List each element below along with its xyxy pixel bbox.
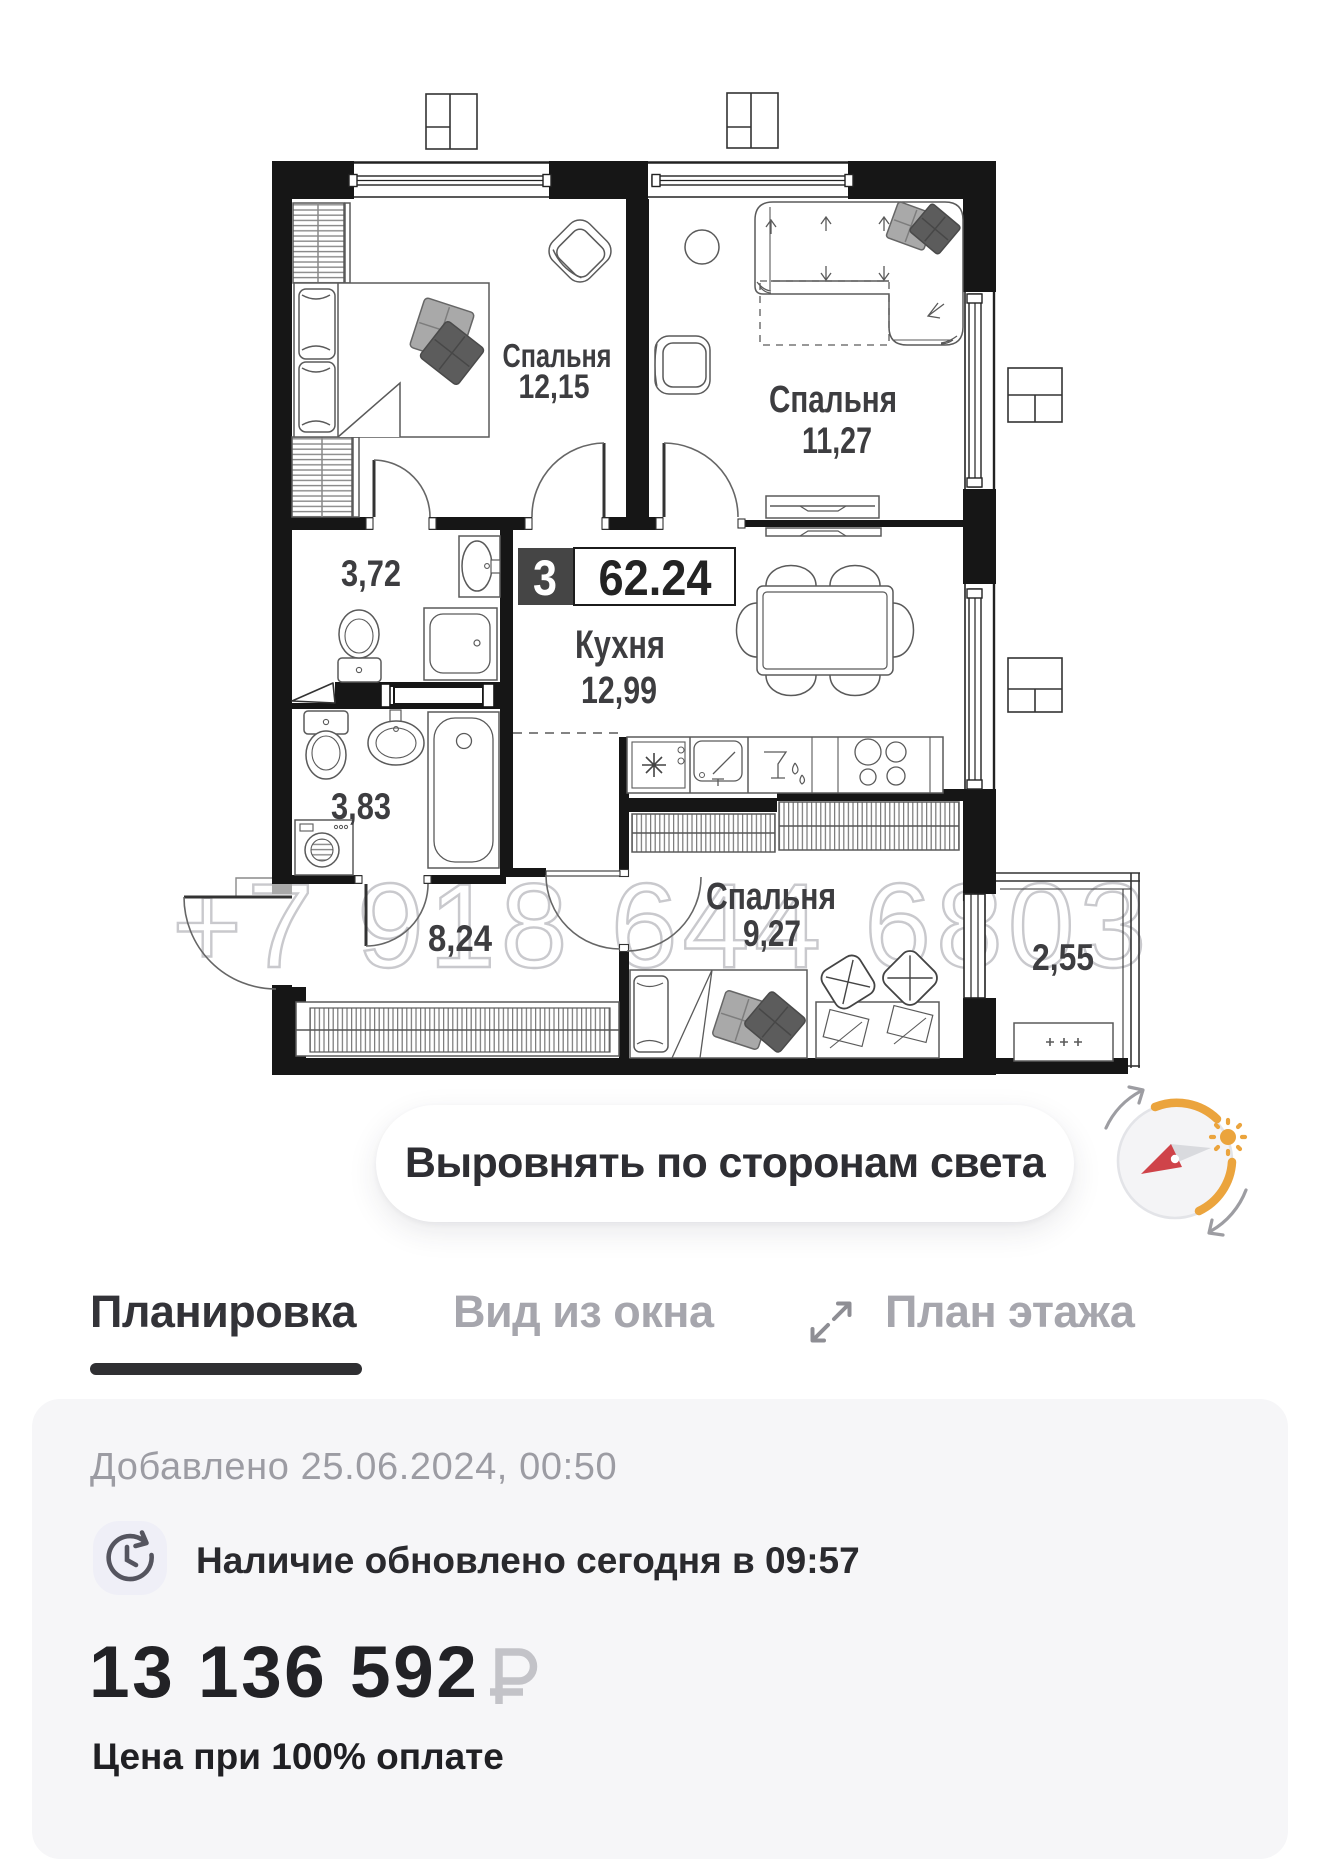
svg-text:9,27: 9,27: [743, 913, 801, 954]
svg-text:12,99: 12,99: [581, 670, 657, 712]
svg-text:3,72: 3,72: [341, 553, 401, 594]
svg-text:3: 3: [533, 550, 557, 606]
svg-text:2,55: 2,55: [1032, 937, 1094, 978]
svg-text:Кухня: Кухня: [575, 623, 665, 667]
svg-text:8,24: 8,24: [428, 918, 492, 959]
svg-text:Спальня: Спальня: [706, 876, 836, 918]
svg-text:3,83: 3,83: [331, 786, 391, 827]
svg-text:12,15: 12,15: [519, 368, 590, 406]
svg-text:Спальня: Спальня: [769, 379, 897, 421]
svg-text:11,27: 11,27: [802, 420, 872, 461]
svg-text:62.24: 62.24: [599, 550, 712, 606]
